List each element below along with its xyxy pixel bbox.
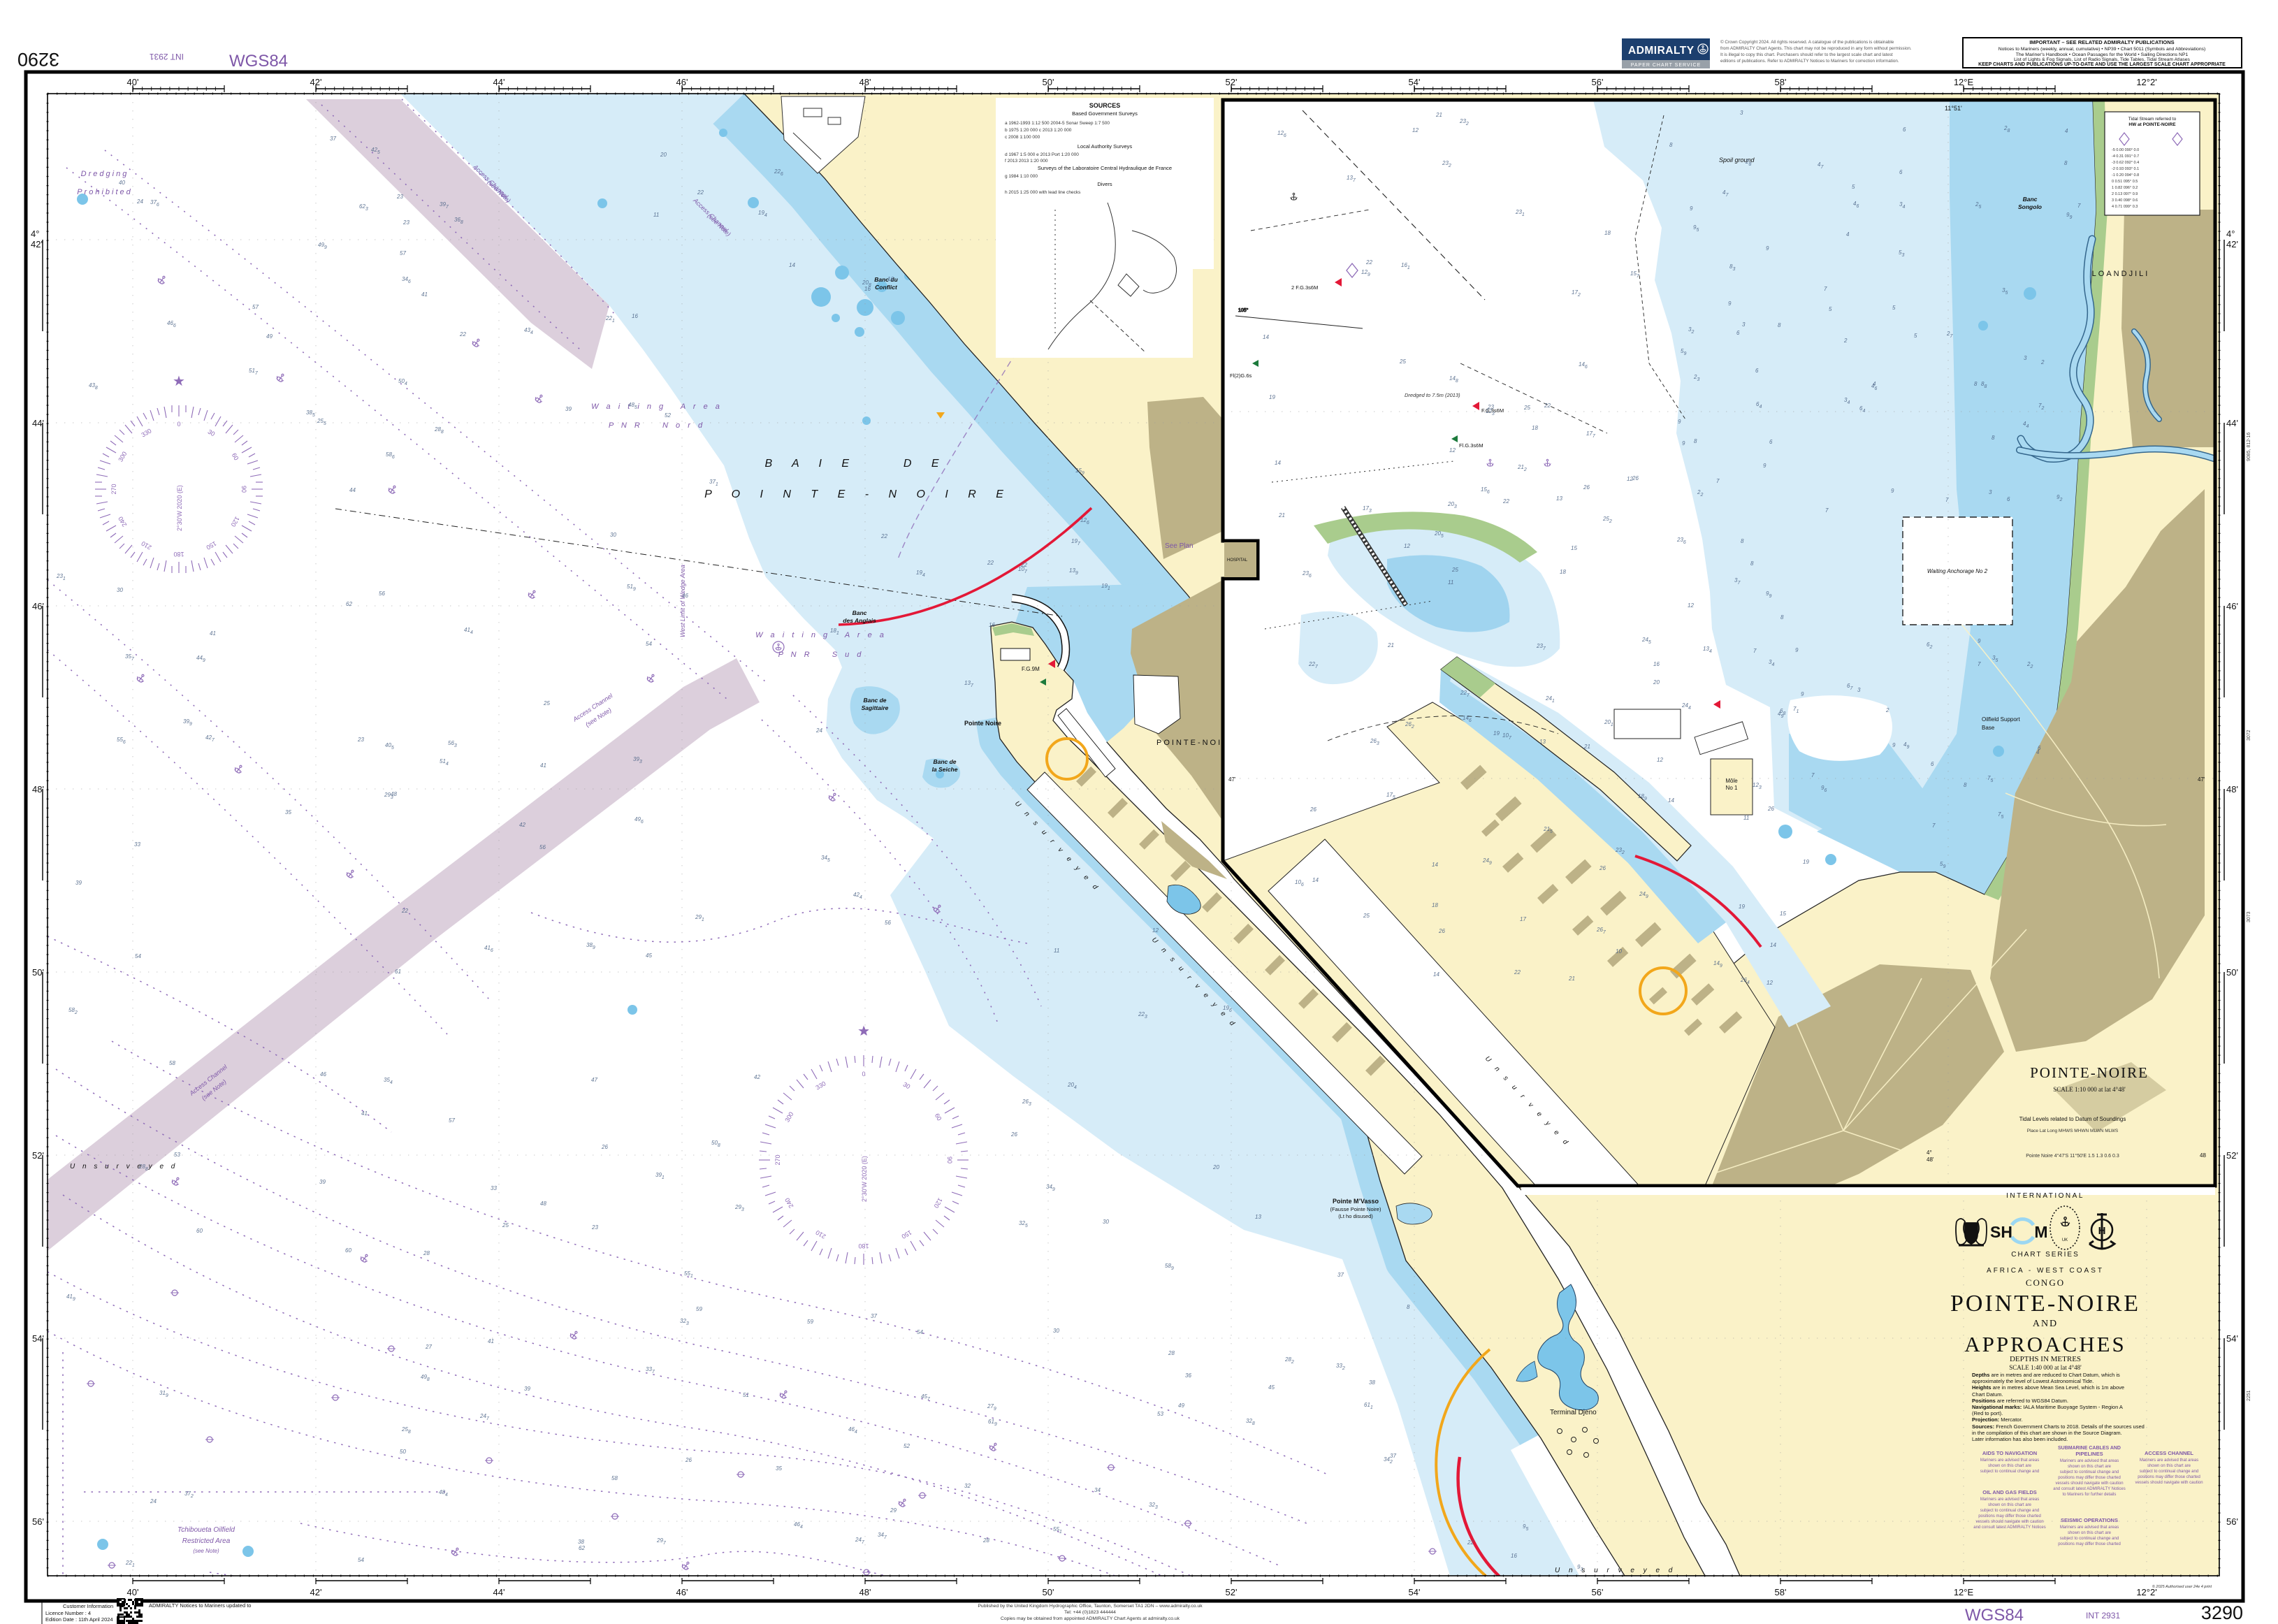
svg-text:M: M [2034,1223,2047,1241]
svg-text:34: 34 [1094,1487,1101,1493]
svg-text:44': 44' [32,418,44,428]
svg-text:42': 42' [310,1587,322,1597]
svg-text:Pointe Noire: Pointe Noire [964,720,1001,727]
svg-text:11: 11 [653,212,659,218]
svg-text:22: 22 [1514,969,1521,976]
svg-text:12: 12 [1627,476,1633,482]
svg-text:11: 11 [1743,815,1749,821]
svg-text:12: 12 [1657,757,1663,763]
svg-text:15: 15 [1571,545,1577,551]
svg-text:44': 44' [493,77,505,87]
svg-text:Edition Date : 11th Apr: Edition Date : 11th April 2024 [45,1616,113,1623]
svg-text:7: 7 [1825,507,1829,514]
svg-text:vessels should navigate with c: vessels should navigate with caution [2055,1481,2123,1486]
svg-text:h 2015 1:25 000 with lead: h 2015 1:25 000 with lead line checks [1005,190,1081,195]
svg-text:f 2013: f 2013 2013 1:20 000 [1005,159,1048,164]
svg-text:14: 14 [1263,334,1269,340]
svg-text:12°2': 12°2' [2136,1587,2156,1597]
svg-text:59: 59 [696,1306,702,1312]
svg-text:See Plan: See Plan [1165,542,1194,550]
svg-text:Tidal Levels related to Datum: Tidal Levels related to Datum of Soundin… [2019,1116,2126,1122]
svg-text:26: 26 [1310,806,1316,813]
svg-text:18: 18 [1532,425,1538,431]
svg-text:50: 50 [400,1449,406,1455]
svg-text:b 1975 1:20 000: b 1975 1:20 000 c 2013 1:20 000 [1005,128,1072,133]
svg-text:3073: 3073 [2247,911,2251,922]
svg-text:23: 23 [357,737,364,743]
svg-text:58': 58' [1775,77,1787,87]
svg-text:54': 54' [1409,1587,1421,1597]
svg-text:22: 22 [401,908,408,914]
svg-text:in the compilation of this cha: in the compilation of this chart are sho… [1972,1430,2122,1436]
svg-text:23: 23 [402,219,409,226]
svg-text:27: 27 [425,1344,432,1350]
svg-text:Dredged to 7.5m (2013): Dredged to 7.5m (2013) [1405,392,1460,398]
svg-text:90: 90 [946,1157,953,1163]
svg-text:47': 47' [2198,776,2205,783]
svg-text:to Mariners for further detail: to Mariners for further details [2063,1493,2117,1497]
svg-text:20: 20 [1653,679,1660,686]
svg-text:5: 5 [1914,333,1917,339]
svg-text:45: 45 [1268,1384,1275,1391]
svg-text:2: 2 [1843,338,1848,344]
svg-text:25: 25 [1451,567,1458,573]
svg-text:2°30'W 2020 (E): 2°30'W 2020 (E) [176,485,183,531]
svg-text:48': 48' [859,1587,871,1597]
svg-text:Conflict: Conflict [875,284,898,291]
svg-text:Tel: +44 (0)1823 444444: Tel: +44 (0)1823 444444 [1064,1610,1116,1615]
svg-text:positions may differ those cha: positions may differ those charted [1978,1514,2041,1518]
svg-text:SUBMARINE CABLES AND: SUBMARINE CABLES AND [2058,1446,2121,1451]
svg-text:44: 44 [349,487,356,493]
svg-text:18: 18 [1604,230,1611,236]
svg-text:45: 45 [646,952,652,959]
svg-text:56': 56' [2226,1516,2238,1527]
svg-text:5: 5 [1892,305,1896,311]
svg-text:-4 0.31 091° 0.7: -4 0.31 091° 0.7 [2112,154,2139,159]
svg-text:40': 40' [127,77,139,87]
svg-text:13: 13 [1556,495,1562,502]
svg-text:It is illegal to copy this cha: It is illegal to copy this chart. Purcha… [1720,52,1893,57]
svg-text:7: 7 [1811,772,1815,778]
svg-text:c 2008 1:100 000: c 2008 1:100 000 [1005,135,1040,140]
svg-text:7: 7 [1824,286,1827,292]
svg-text:50': 50' [1043,1587,1054,1597]
svg-text:6: 6 [1769,439,1773,445]
svg-text:56': 56' [1592,77,1604,87]
svg-text:ADMIRALTY Notices to Mariners: ADMIRALTY Notices to Mariners updated to [149,1602,251,1609]
svg-text:8: 8 [1750,560,1754,567]
svg-text:Mariners are advised that area: Mariners are advised that areas [1980,1498,2039,1502]
svg-text:58': 58' [1775,1587,1787,1597]
svg-text:12°E: 12°E [1954,1587,1974,1597]
svg-text:Terminal Djeno: Terminal Djeno [1550,1409,1597,1416]
svg-text:(see Note): (see Note) [193,1548,219,1554]
svg-text:Banc de: Banc de [863,697,886,704]
svg-text:52': 52' [1226,1587,1238,1597]
svg-text:SOURCES: SOURCES [1089,102,1121,109]
svg-text:52': 52' [1226,77,1238,87]
svg-text:No 1: No 1 [1726,785,1738,791]
svg-text:42: 42 [519,822,525,828]
svg-text:54': 54' [2226,1333,2238,1344]
svg-text:vessels should navigate with c: vessels should navigate with caution [2135,1481,2203,1485]
svg-text:POINTE-NOIRE: POINTE-NOIRE [2030,1064,2149,1081]
svg-text:15: 15 [1780,911,1786,917]
svg-text:0: 0 [862,1071,865,1078]
svg-text:26: 26 [1438,928,1445,934]
svg-text:shown on this chart are: shown on this chart are [1988,1503,2032,1507]
svg-text:37: 37 [871,1313,877,1319]
svg-text:Oilfield Support: Oilfield Support [1982,716,2020,723]
svg-text:52: 52 [665,412,671,419]
svg-text:Banc: Banc [2023,196,2038,203]
svg-text:subject to continual change an: subject to continual change and [2060,1537,2119,1541]
svg-text:9: 9 [1682,440,1685,447]
svg-text:21: 21 [1278,512,1285,519]
svg-text:and consult latest ADMIRALTY N: and consult latest ADMIRALTY Notices [1973,1525,2046,1530]
svg-text:U n s u r v e y e d: U n s u r v e y e d [1555,1567,1676,1574]
svg-text:Banc de: Banc de [933,758,956,765]
svg-text:21: 21 [1435,112,1442,118]
svg-text:ACCESS CHANNEL: ACCESS CHANNEL [2145,1450,2193,1456]
svg-text:4 0.71 099° 0.3: 4 0.71 099° 0.3 [2112,205,2138,209]
svg-text:Restricted Area: Restricted Area [182,1537,231,1545]
svg-text:HOSPITAL: HOSPITAL [1227,558,1248,563]
svg-text:39: 39 [524,1386,530,1392]
svg-text:des Anglais: des Anglais [843,617,876,624]
svg-text:4: 4 [1873,381,1876,387]
svg-text:5: 5 [1829,306,1832,312]
svg-text:50': 50' [1043,77,1054,87]
svg-text:25: 25 [1399,358,1406,365]
svg-text:22: 22 [1502,498,1509,505]
svg-text:14: 14 [1312,877,1319,883]
svg-text:39: 39 [75,880,82,886]
svg-text:AIDS TO NAVIGATION: AIDS TO NAVIGATION [1982,1450,2037,1456]
svg-text:editions of publications. Refe: editions of publications. Refer to ADMIR… [1720,59,1899,64]
svg-text:57: 57 [400,250,406,256]
svg-text:11: 11 [1448,579,1453,586]
svg-text:49: 49 [266,333,273,340]
svg-text:14: 14 [1275,460,1281,466]
svg-text:shown on this chart are: shown on this chart are [2068,1465,2112,1469]
svg-text:46': 46' [676,1587,688,1597]
svg-text:62: 62 [579,1545,585,1551]
svg-text:51: 51 [743,1392,749,1398]
svg-text:57: 57 [252,304,259,310]
svg-text:INT 2931: INT 2931 [150,52,184,61]
svg-text:vessels should navigate with c: vessels should navigate with caution [1975,1520,2043,1524]
svg-text:Customer Information: Customer Information [63,1603,113,1609]
svg-text:Surveys of the Laboratoire Cen: Surveys of the Laboratoire Central Hydra… [1038,165,1172,171]
svg-text:16: 16 [1511,1553,1517,1559]
svg-text:9085, 812-16: 9085, 812-16 [2247,433,2251,461]
svg-text:W a i t i n g A r e a: W a i t i n g A r e a [591,403,723,411]
svg-text:Place Lat Lo: Place Lat Long MHWS MHWN MLWN MLWS [2027,1129,2119,1133]
svg-text:30: 30 [117,587,123,593]
svg-text:8: 8 [1778,322,1781,328]
svg-text:38: 38 [578,1539,584,1545]
svg-text:57: 57 [449,1117,455,1124]
svg-text:3: 3 [1740,110,1743,116]
svg-text:18: 18 [1432,902,1438,908]
svg-text:22: 22 [880,533,887,539]
svg-text:42: 42 [754,1074,760,1080]
svg-text:2°30'W 2020 (E): 2°30'W 2020 (E) [861,1156,868,1202]
svg-text:positions may differ those cha: positions may differ those charted [2138,1475,2200,1479]
svg-text:6: 6 [1931,761,1934,767]
svg-text:12: 12 [1404,543,1410,549]
svg-text:Tchiboueta Oilfield: Tchiboueta Oilfield [177,1526,235,1534]
svg-text:62: 62 [346,601,352,607]
svg-text:53: 53 [1157,1411,1163,1417]
svg-text:26: 26 [685,1457,692,1463]
svg-text:Mariners are advised that area: Mariners are advised that areas [2060,1525,2119,1530]
svg-text:0: 0 [177,421,180,428]
svg-text:1 0.82 096° 0.2: 1 0.82 096° 0.2 [2112,186,2138,190]
svg-text:7: 7 [1753,648,1757,654]
svg-text:OIL AND GAS FIELDS: OIL AND GAS FIELDS [1982,1489,2037,1495]
svg-text:16: 16 [632,313,638,319]
svg-text:39: 39 [319,1179,326,1185]
svg-text:56': 56' [32,1516,44,1527]
svg-text:24: 24 [136,198,143,205]
svg-text:WGS84: WGS84 [229,52,288,71]
svg-text:9: 9 [1728,300,1732,307]
svg-text:-3 0.62 092° 0.4: -3 0.62 092° 0.4 [2112,161,2139,165]
svg-text:21: 21 [1583,744,1590,750]
svg-text:la Seiche: la Seiche [932,766,958,773]
svg-text:42': 42' [31,239,43,249]
svg-text:4°: 4° [2226,229,2235,239]
svg-text:approximately the level of Low: approximately the level of Lowest Astron… [1972,1378,2094,1384]
svg-text:22: 22 [987,560,994,566]
svg-text:30: 30 [1103,1219,1109,1225]
svg-text:Divers: Divers [1097,181,1112,187]
svg-text:8: 8 [1964,782,1967,788]
svg-text:22: 22 [1467,1539,1474,1546]
svg-text:14: 14 [1433,971,1439,978]
svg-text:46: 46 [320,1071,326,1078]
svg-text:3: 3 [2024,355,2027,361]
svg-text:50': 50' [32,967,44,978]
svg-text:(Red to port).: (Red to port). [1972,1410,2003,1416]
svg-text:52: 52 [904,1443,910,1449]
svg-text:Mariners are advised that area: Mariners are advised that areas [1980,1458,2039,1463]
svg-text:9: 9 [1891,488,1894,494]
svg-text:46': 46' [32,601,44,611]
svg-text:14: 14 [1668,797,1674,804]
svg-text:LOANDJILI: LOANDJILI [2092,270,2150,278]
svg-text:3290: 3290 [17,49,59,70]
svg-text:14: 14 [789,262,795,268]
svg-text:2 0.13 097° 0.9: 2 0.13 097° 0.9 [2112,192,2138,196]
svg-text:12: 12 [1412,127,1419,133]
svg-text:subject to continual change an: subject to continual change and [2060,1470,2119,1474]
svg-text:7: 7 [1932,822,1936,829]
svg-text:APPROACHES: APPROACHES [1964,1332,2126,1356]
svg-text:41: 41 [210,630,216,637]
svg-text:9: 9 [1763,463,1766,469]
svg-text:(Fausse Pointe Noire): (Fausse Pointe Noire) [1330,1206,1381,1212]
svg-text:11°51': 11°51' [1945,105,1962,112]
svg-text:40: 40 [119,180,125,186]
svg-text:270: 270 [110,484,117,494]
svg-text:9: 9 [1678,419,1681,425]
svg-text:shown on this chart are: shown on this chart are [2147,1464,2191,1468]
svg-text:90: 90 [240,486,247,493]
svg-text:7: 7 [1978,661,1981,667]
svg-text:CHART SERIES: CHART SERIES [2011,1251,2080,1259]
svg-text:© 2025 Authorised user 24e 4 p: © 2025 Authorised user 24e 4 print [2152,1584,2212,1589]
svg-text:54': 54' [1409,77,1421,87]
svg-text:Prohibited: Prohibited [77,188,133,196]
svg-text:SEISMIC OPERATIONS: SEISMIC OPERATIONS [2061,1517,2118,1523]
svg-text:Pointe Noire 4°47'S 11°50: Pointe Noire 4°47'S 11°50'E 1.5 1.3 0.6 … [2026,1153,2119,1159]
svg-text:54: 54 [646,641,652,647]
svg-text:Fl.G.3s6M: Fl.G.3s6M [1459,442,1483,449]
svg-text:a 1962-1993 1:12 500 2004: a 1962-1993 1:12 500 2004-5 Sonar Sweep … [1005,121,1110,126]
svg-text:12: 12 [1688,602,1694,609]
svg-text:14: 14 [1432,862,1438,868]
svg-text:56: 56 [885,920,891,926]
svg-text:AFRICA - WEST COAST: AFRICA - WEST COAST [1987,1267,2104,1275]
svg-text:26: 26 [1599,865,1606,871]
svg-text:8: 8 [1741,538,1744,544]
svg-text:28: 28 [1168,1350,1175,1356]
svg-text:4: 4 [1846,231,1850,238]
svg-text:IMPORTANT – SEE RELATED ADMIRA: IMPORTANT – SEE RELATED ADMIRALTY PUBLIC… [2029,39,2174,45]
svg-text:W a i t i n g A r e a: W a i t i n g A r e a [755,631,887,639]
svg-text:36: 36 [1185,1372,1191,1379]
svg-text:47: 47 [591,1077,597,1083]
svg-text:Pointe M’Vasso: Pointe M’Vasso [1333,1198,1379,1205]
svg-text:37: 37 [330,136,336,142]
svg-text:5: 5 [1852,184,1855,190]
svg-text:PIPELINES: PIPELINES [2075,1451,2103,1457]
svg-text:8: 8 [1407,1304,1410,1310]
svg-text:2: 2 [1885,707,1889,713]
svg-text:270: 270 [774,1154,781,1165]
svg-text:© Crown Copyright 2024. All ri: © Crown Copyright 2024. All rights reser… [1720,39,1894,45]
svg-text:11: 11 [1054,948,1059,954]
svg-text:37: 37 [1390,1453,1396,1459]
svg-text:2: 2 [2040,359,2045,365]
svg-text:7: 7 [1716,478,1720,484]
svg-text:19: 19 [1803,859,1809,865]
svg-text:9: 9 [1978,638,1981,644]
svg-text:37: 37 [1337,1272,1344,1278]
svg-text:Dredging: Dredging [81,170,129,178]
svg-text:subject to continual change an: subject to continual change and [1980,1470,2039,1474]
svg-text:The Mariner's Handbook • Oce: The Mariner's Handbook • Ocean Passages … [2016,52,2189,57]
svg-text:8: 8 [1992,435,1995,441]
svg-text:30: 30 [1053,1328,1059,1334]
svg-text:d 1967 1:5 000 e 2: d 1967 1:5 000 e 2013 Port 1:20 000 [1005,152,1079,157]
svg-text:20: 20 [660,152,667,158]
svg-text:32: 32 [964,1483,971,1489]
svg-text:18: 18 [1560,569,1566,575]
svg-text:41: 41 [488,1338,494,1344]
svg-text:8: 8 [1694,438,1697,444]
svg-text:24: 24 [150,1498,157,1505]
svg-text:WGS84: WGS84 [1965,1606,2024,1624]
svg-text:58: 58 [611,1475,618,1481]
svg-text:positions may differ those cha: positions may differ those charted [2058,1476,2121,1480]
svg-text:(Lt ho disused): (Lt ho disused) [1338,1213,1373,1219]
svg-text:Songolo: Songolo [2018,203,2042,210]
svg-text:HW at POINTE-NOIRE: HW at POINTE-NOIRE [2128,122,2176,127]
svg-text:positions may differ those cha: positions may differ those charted [2058,1542,2121,1546]
svg-text:POINTE-NOIRE: POINTE-NOIRE [1950,1291,2140,1317]
svg-text:Banc du: Banc du [874,276,898,283]
svg-text:53: 53 [174,1152,180,1158]
svg-text:-5 0.00 090° 0.0: -5 0.00 090° 0.0 [2112,148,2139,152]
svg-text:8: 8 [1780,614,1784,621]
svg-text:39: 39 [565,406,572,412]
svg-text:subject to continual change an: subject to continual change and [1980,1509,2039,1513]
svg-text:6: 6 [1903,126,1906,133]
svg-text:49: 49 [1178,1402,1184,1409]
svg-text:Local Authority Surveys: Local Authority Surveys [1078,143,1133,150]
svg-text:48: 48 [540,1201,546,1207]
svg-text:41: 41 [540,762,546,769]
svg-text:52': 52' [32,1150,44,1161]
svg-text:25: 25 [1523,405,1530,411]
svg-text:Base: Base [1982,725,1995,731]
svg-text:6: 6 [1736,330,1740,336]
svg-text:2251: 2251 [2247,1390,2251,1401]
svg-text:List of Lights & Fog Signals,: List of Lights & Fog Signals, List of Ra… [2014,57,2190,62]
svg-text:12: 12 [1152,927,1159,934]
svg-text:Chart Datum.: Chart Datum. [1972,1391,2003,1398]
svg-text:6: 6 [1899,169,1903,175]
svg-text:PAPER CHART SERVICE: PAPER CHART SERVICE [1631,63,1702,68]
svg-text:6: 6 [2007,496,2010,502]
svg-text:AND: AND [2033,1319,2058,1329]
svg-text:7: 7 [2077,203,2081,209]
svg-text:54': 54' [32,1333,44,1344]
svg-text:48': 48' [1927,1157,1934,1163]
svg-text:54: 54 [135,953,141,959]
svg-text:3290: 3290 [2201,1602,2243,1623]
svg-text:46': 46' [2226,601,2238,611]
svg-text:44': 44' [2226,418,2238,428]
svg-text:P N R S u d: P N R S u d [778,651,864,659]
svg-text:54: 54 [917,1329,923,1335]
svg-text:CONGO: CONGO [2026,1277,2065,1288]
svg-text:41: 41 [421,291,428,298]
svg-text:subject to continual change an: subject to continual change and [2140,1470,2198,1474]
svg-text:180: 180 [858,1242,869,1249]
svg-text:Later information has also bee: Later information has also been included… [1972,1436,2068,1442]
svg-text:10: 10 [1616,948,1622,955]
svg-text:2 F.G.3s6M: 2 F.G.3s6M [1291,284,1318,291]
svg-text:Navigational marks: IALA Marit: Navigational marks: IALA Maritime Buoyag… [1972,1404,2123,1410]
svg-text:14: 14 [1770,942,1776,948]
svg-text:Fl(2)G.6s: Fl(2)G.6s [1230,372,1252,379]
svg-text:47': 47' [1228,776,1236,783]
svg-text:23: 23 [1487,404,1494,410]
svg-text:4°: 4° [1927,1150,1932,1156]
svg-text:42': 42' [310,77,322,87]
svg-text:9: 9 [1795,647,1799,653]
svg-text:Depths are in metres and are r: Depths are in metres and are reduced to … [1972,1372,2120,1378]
svg-text:16: 16 [887,276,894,282]
svg-text:26: 26 [1767,806,1774,812]
svg-text:Mariners are advised that area: Mariners are advised that areas [2060,1459,2119,1463]
